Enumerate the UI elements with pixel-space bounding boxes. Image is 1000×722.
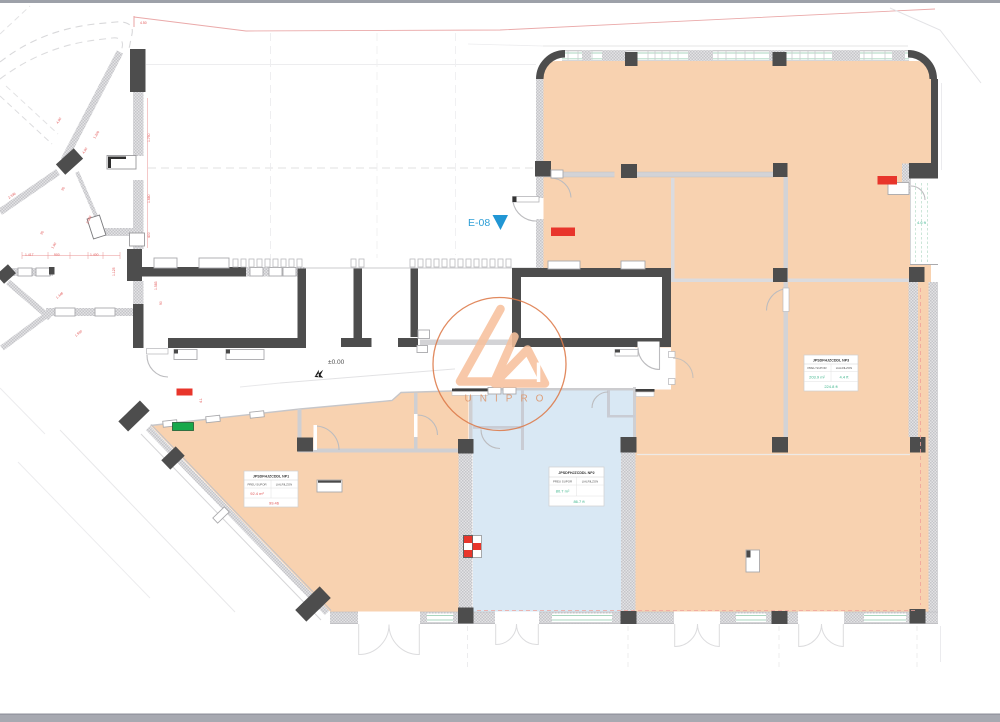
svg-text:LIALRILZON: LIALRILZON bbox=[582, 480, 599, 484]
svg-text:4.6 ft: 4.6 ft bbox=[917, 220, 927, 225]
svg-text:JPSDFHJZCDDL NP3: JPSDFHJZCDDL NP3 bbox=[813, 359, 849, 363]
svg-text:99.46: 99.46 bbox=[269, 501, 280, 506]
svg-text:UNIPRO: UNIPRO bbox=[465, 394, 552, 405]
svg-text:1.125: 1.125 bbox=[112, 267, 116, 276]
svg-text:224.8 ft: 224.8 ft bbox=[824, 384, 838, 389]
svg-text:PREU SUPOR: PREU SUPOR bbox=[247, 483, 266, 487]
svg-text:86.7 ft: 86.7 ft bbox=[573, 499, 585, 504]
svg-text:JPSDFHJZCDDL NP2: JPSDFHJZCDDL NP2 bbox=[558, 471, 594, 475]
svg-text:4.1: 4.1 bbox=[199, 398, 203, 403]
svg-text:JPSDFHJZCDDL NP1: JPSDFHJZCDDL NP1 bbox=[253, 475, 289, 479]
svg-text:PREU SUPOR: PREU SUPOR bbox=[553, 480, 572, 484]
svg-text:92.4 m²: 92.4 m² bbox=[250, 491, 264, 496]
svg-text:203.9 m²: 203.9 m² bbox=[809, 375, 825, 380]
svg-text:1.400: 1.400 bbox=[90, 253, 99, 257]
svg-text:4.4 ft: 4.4 ft bbox=[840, 375, 850, 380]
svg-text:E-08: E-08 bbox=[468, 217, 490, 229]
svg-text:90: 90 bbox=[159, 301, 163, 305]
svg-text:1.417: 1.417 bbox=[25, 253, 34, 257]
svg-text:4.50: 4.50 bbox=[140, 21, 147, 25]
svg-text:80.7 m²: 80.7 m² bbox=[556, 489, 570, 494]
svg-text:PREU SUPOR: PREU SUPOR bbox=[807, 366, 826, 370]
svg-text:1.583: 1.583 bbox=[154, 281, 158, 290]
svg-text:LIALRILZON: LIALRILZON bbox=[836, 366, 853, 370]
svg-text:±0.00: ±0.00 bbox=[328, 359, 345, 366]
svg-text:LIALRILZON: LIALRILZON bbox=[276, 483, 293, 487]
svg-text:900: 900 bbox=[54, 253, 60, 257]
